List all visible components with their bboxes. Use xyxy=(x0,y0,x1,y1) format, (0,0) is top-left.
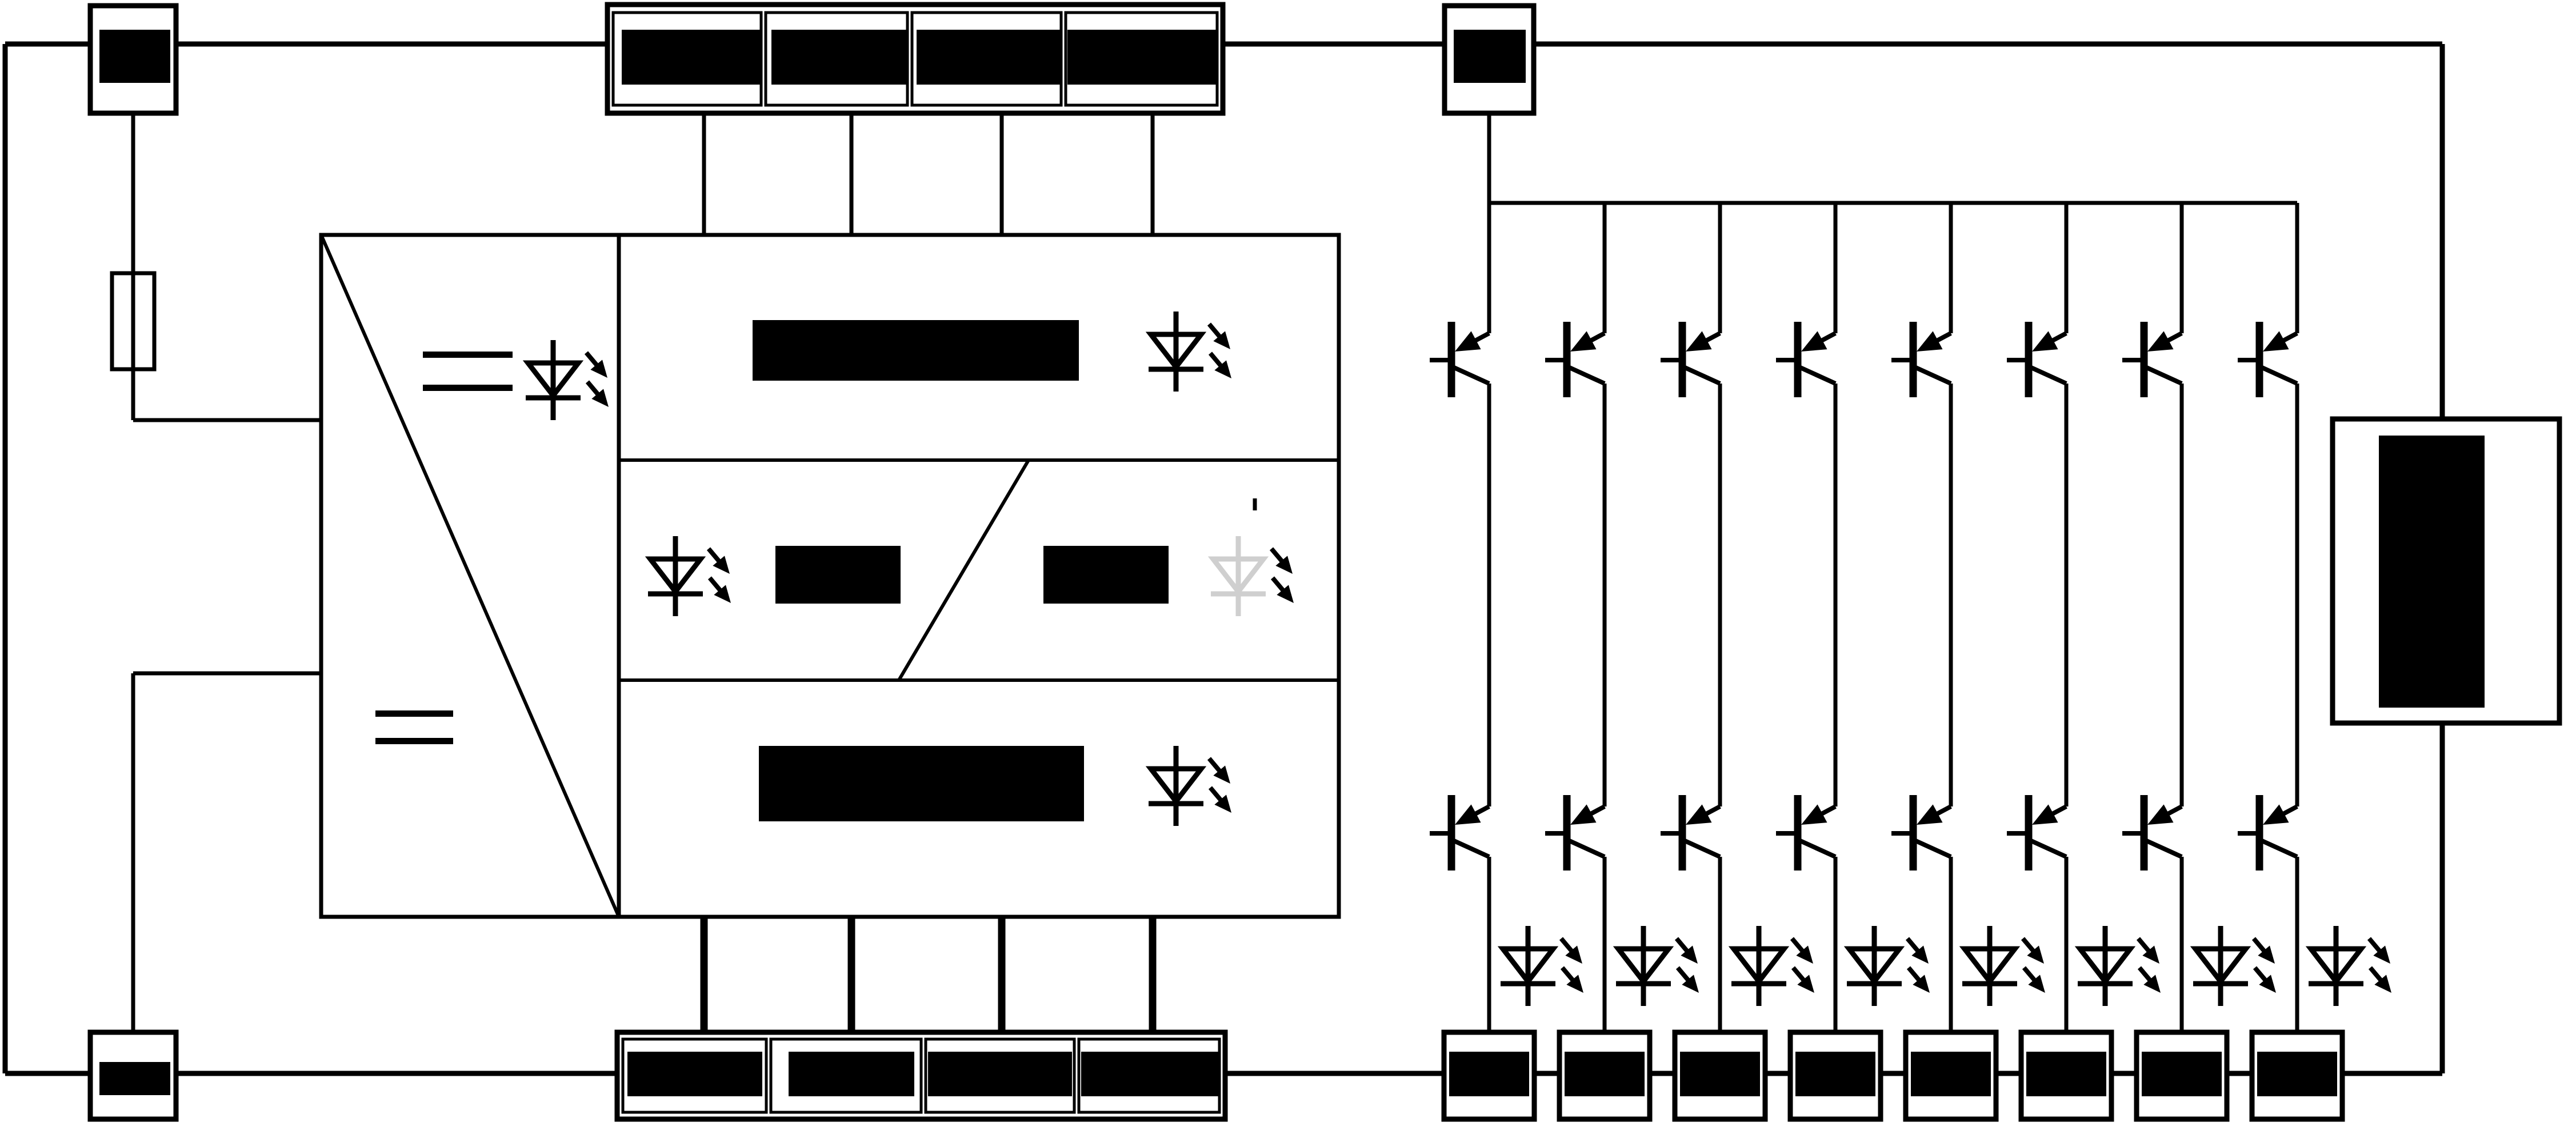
redacted-label xyxy=(1449,1052,1529,1096)
indicator-led-icon xyxy=(648,536,731,616)
redacted-label xyxy=(1043,546,1169,604)
transistor-collector-lead xyxy=(1682,840,1720,857)
inverter-leg xyxy=(1661,203,1814,1119)
transistor-collector-lead xyxy=(1567,366,1605,384)
inverter-leg xyxy=(1430,203,1583,1119)
transistor-icon xyxy=(1661,795,1720,871)
redacted-label xyxy=(2379,436,2485,708)
redacted-label xyxy=(2026,1052,2106,1096)
bottom-module-row xyxy=(617,917,1225,1119)
input-terminal-top-left xyxy=(90,6,176,113)
transistor-collector-lead xyxy=(1682,366,1720,384)
transistor-collector-lead xyxy=(1798,840,1835,857)
redacted-label xyxy=(2142,1052,2222,1096)
converter-box xyxy=(321,235,619,917)
redacted-label xyxy=(753,320,1079,381)
inverter-leg xyxy=(1776,203,1930,1119)
redacted-label xyxy=(1680,1052,1760,1096)
transistor-icon xyxy=(1891,795,1951,871)
output-terminal-block xyxy=(1559,1032,1650,1119)
inverter-leg xyxy=(2007,203,2161,1119)
transistor-collector-lead xyxy=(1451,366,1489,384)
inverter-leg xyxy=(1545,203,1699,1119)
dc-symbol-bar xyxy=(375,738,453,744)
redacted-label xyxy=(1067,30,1216,85)
indicator-led-icon xyxy=(2193,926,2276,1006)
transistor-icon xyxy=(1891,322,1951,397)
transistor-collector-lead xyxy=(2029,840,2066,857)
redacted-label xyxy=(99,1062,170,1095)
indicator-led-icon-muted xyxy=(1211,536,1294,616)
transistor-icon xyxy=(2007,795,2066,871)
redacted-label xyxy=(2257,1052,2337,1096)
redacted-label xyxy=(1454,30,1526,83)
redacted-label xyxy=(1911,1052,1991,1096)
transistor-icon xyxy=(2122,322,2182,397)
source-chain xyxy=(90,6,321,1119)
output-terminal-block xyxy=(1444,1032,1534,1119)
transistor-collector-lead xyxy=(2144,840,2182,857)
transistor-icon xyxy=(1776,795,1835,871)
output-terminal-block xyxy=(1906,1032,1996,1119)
load-box xyxy=(2333,419,2559,723)
transistor-collector-lead xyxy=(1913,840,1951,857)
transistor-icon xyxy=(1430,322,1489,397)
transistor-icon xyxy=(1545,322,1605,397)
indicator-led-icon xyxy=(1149,746,1231,826)
indicator-led-icon xyxy=(2078,926,2161,1006)
transistor-icon xyxy=(2007,322,2066,397)
redacted-label xyxy=(775,546,901,604)
output-terminal-block xyxy=(2252,1032,2342,1119)
indicator-led-icon xyxy=(1149,312,1231,392)
indicator-led-icon xyxy=(2309,926,2391,1006)
transistor-icon xyxy=(1430,795,1489,871)
dc-symbol-bar xyxy=(423,385,513,391)
transistor-collector-lead xyxy=(2029,366,2066,384)
redacted-label xyxy=(917,30,1061,85)
redacted-label xyxy=(1565,1052,1645,1096)
redacted-label xyxy=(759,746,1084,821)
transistor-collector-lead xyxy=(2144,366,2182,384)
inverter-leg xyxy=(2122,203,2276,1119)
transistor-icon xyxy=(1776,322,1835,397)
redacted-label xyxy=(622,30,761,85)
indicator-led-icon xyxy=(1962,926,2045,1006)
transistor-icon xyxy=(2122,795,2182,871)
schematic-page xyxy=(0,0,2576,1126)
transistor-icon xyxy=(2238,322,2297,397)
dc-symbol-bar xyxy=(423,352,513,358)
output-terminal-block xyxy=(2137,1032,2227,1119)
input-terminal-bottom-left xyxy=(90,1032,176,1119)
transistor-collector-lead xyxy=(1798,366,1835,384)
indicator-led-icon xyxy=(1847,926,1930,1006)
indicator-led-icon xyxy=(1501,926,1583,1006)
output-terminal-block xyxy=(2021,1032,2111,1119)
redacted-label xyxy=(627,1052,762,1096)
bus-feed-terminal xyxy=(1445,6,1534,113)
transistor-collector-lead xyxy=(1451,840,1489,857)
transistor-icon xyxy=(1545,795,1605,871)
dc-symbol-bar xyxy=(375,710,453,717)
indicator-led-icon xyxy=(1616,926,1699,1006)
transistor-icon xyxy=(2238,795,2297,871)
redacted-label xyxy=(789,1052,914,1096)
transistor-collector-lead xyxy=(1567,840,1605,857)
redacted-label xyxy=(1795,1052,1875,1096)
inverter-leg xyxy=(1891,203,2045,1119)
redacted-label xyxy=(1081,1052,1218,1096)
output-terminal-block xyxy=(1790,1032,1881,1119)
redacted-label xyxy=(99,30,170,83)
transistor-collector-lead xyxy=(2259,840,2297,857)
redacted-label xyxy=(771,30,906,85)
transistor-collector-lead xyxy=(2259,366,2297,384)
output-terminal-block xyxy=(1675,1032,1765,1119)
transistor-icon xyxy=(1661,322,1720,397)
transistor-collector-lead xyxy=(1913,366,1951,384)
inverter-bank xyxy=(1430,6,2391,1119)
controller-box xyxy=(619,235,1339,917)
indicator-led-icon xyxy=(526,340,609,420)
indicator-led-icon xyxy=(1731,926,1814,1006)
circuit-schematic xyxy=(0,0,2576,1126)
row2-diagonal-divider xyxy=(899,460,1029,680)
redacted-label xyxy=(928,1052,1072,1096)
converter-diagonal xyxy=(321,235,619,917)
top-module-row xyxy=(607,5,1223,235)
